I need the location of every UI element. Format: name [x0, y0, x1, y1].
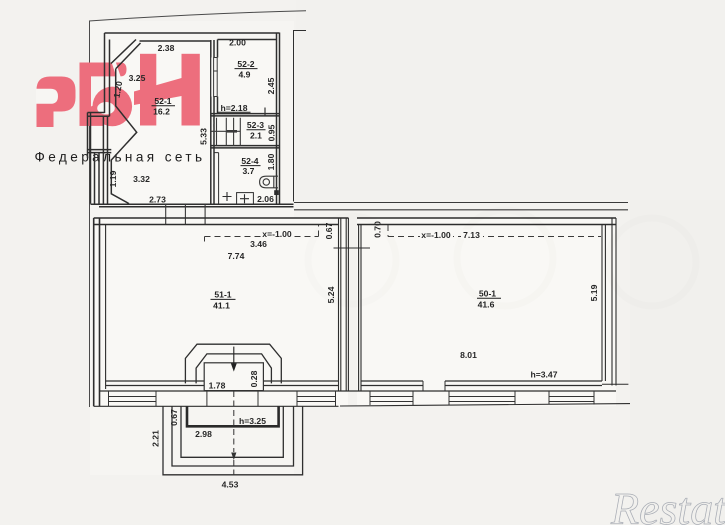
svg-text:52-4: 52-4	[241, 156, 258, 166]
svg-text:51-1: 51-1	[214, 290, 231, 300]
svg-text:3.7: 3.7	[243, 166, 255, 176]
svg-text:0.67: 0.67	[169, 409, 179, 426]
svg-text:Restate: Restate	[610, 483, 725, 525]
svg-text:2.45: 2.45	[266, 77, 276, 94]
svg-text:2.00: 2.00	[229, 38, 246, 48]
svg-text:0.95: 0.95	[267, 124, 277, 141]
svg-text:3.25: 3.25	[129, 73, 146, 83]
svg-text:0.67: 0.67	[324, 222, 334, 239]
svg-text:2.73: 2.73	[149, 195, 166, 205]
svg-text:3.32: 3.32	[133, 174, 150, 184]
svg-text:h=3.47: h=3.47	[531, 370, 558, 380]
svg-text:52-1: 52-1	[154, 96, 171, 106]
svg-text:Федеральная сеть: Федеральная сеть	[35, 150, 206, 165]
svg-text:7.13: 7.13	[463, 230, 480, 240]
svg-text:52-3: 52-3	[247, 120, 264, 130]
svg-text:x=-1.00: x=-1.00	[421, 230, 451, 240]
svg-text:5.33: 5.33	[198, 128, 208, 145]
svg-text:2.06: 2.06	[257, 194, 274, 204]
svg-text:7.74: 7.74	[228, 251, 245, 261]
svg-text:3.46: 3.46	[250, 239, 267, 249]
svg-text:5.19: 5.19	[589, 284, 599, 301]
svg-text:41.1: 41.1	[213, 301, 230, 311]
svg-text:50-1: 50-1	[479, 289, 496, 299]
svg-text:1.19: 1.19	[108, 170, 118, 187]
svg-text:2.21: 2.21	[151, 430, 161, 447]
svg-text:4.9: 4.9	[239, 70, 251, 80]
svg-text:0.28: 0.28	[249, 370, 259, 387]
svg-text:52-2: 52-2	[237, 59, 254, 69]
svg-text:8.01: 8.01	[460, 350, 477, 360]
svg-text:2.38: 2.38	[158, 43, 175, 53]
svg-text:16.2: 16.2	[153, 107, 170, 117]
svg-text:0.70: 0.70	[373, 221, 383, 238]
svg-text:h=2.18: h=2.18	[221, 103, 248, 113]
svg-text:h=3.25: h=3.25	[239, 416, 266, 426]
svg-text:1.78: 1.78	[209, 381, 226, 391]
svg-text:2.1: 2.1	[250, 131, 262, 141]
svg-text:4.53: 4.53	[222, 480, 239, 490]
svg-text:1.80: 1.80	[266, 153, 276, 170]
svg-text:x=-1.00: x=-1.00	[262, 229, 292, 239]
svg-text:5.24: 5.24	[326, 286, 336, 303]
svg-text:41.6: 41.6	[478, 300, 495, 310]
svg-text:2.98: 2.98	[195, 429, 212, 439]
